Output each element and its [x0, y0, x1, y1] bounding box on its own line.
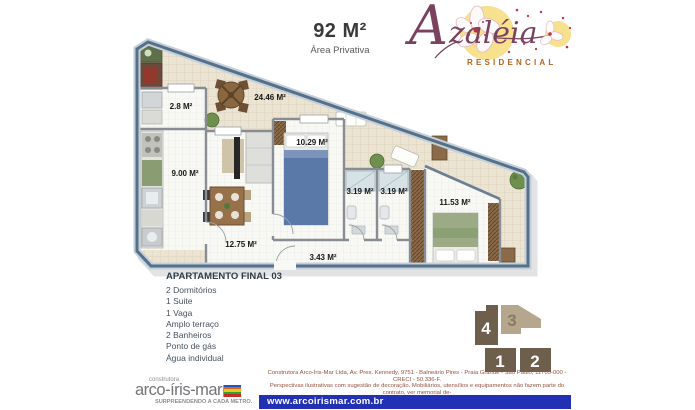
stove	[142, 133, 162, 157]
planter-pot	[145, 50, 152, 57]
tree-detail	[513, 175, 518, 180]
detail-item: 1 Suite	[166, 296, 282, 307]
sink-basin	[146, 192, 158, 204]
unit-number-2: 2	[530, 352, 539, 371]
entrance-gap	[274, 261, 296, 270]
room-label-banheiro-1: 3.19 M²	[346, 187, 373, 196]
room-label-suite: 11.53 M²	[439, 198, 470, 207]
room-label-cozinha: 9.00 M²	[171, 169, 198, 178]
builder-name: arco-íris-mar	[135, 383, 260, 398]
kitchen-garden	[142, 160, 162, 186]
brand-subtitle: RESIDENCIAL	[467, 58, 556, 67]
rainbow-flag-icon	[223, 385, 241, 397]
terrace-dining-set	[215, 79, 249, 113]
brand-name: zaléia	[449, 16, 538, 51]
sofa	[246, 131, 273, 183]
room-label-hall: 3.43 M²	[309, 253, 336, 262]
unit-number-3: 3	[507, 311, 516, 330]
units-diagram: 4 3 1 2	[455, 295, 565, 375]
terrace-bench-wood	[500, 248, 515, 262]
water-heater	[142, 110, 162, 124]
website-bar: www.arcoirismar.com.br	[259, 395, 571, 409]
laundry-tub	[142, 92, 162, 108]
builder-logo: construtora arco-íris-mar SURPREENDENDO …	[135, 377, 260, 405]
flyer-page: 92 M² Área Privativa	[0, 0, 695, 410]
dining-set	[203, 187, 251, 225]
tv-panel	[234, 137, 240, 179]
legal-line: Construtora Arco-Íris-Mar Ltda, Av. Pres…	[262, 370, 572, 383]
room-label-terraco: 24.46 M²	[254, 93, 286, 102]
unit-number-1: 1	[495, 352, 504, 371]
detail-item: 1 Vaga	[166, 308, 282, 319]
detail-item: Água individual	[166, 353, 282, 364]
plant-icon	[370, 154, 384, 168]
floor-plan: 24.46 M² 2.8 M² 9.00 M² 10.29 M² 3.19 M²…	[0, 0, 695, 410]
apartment-details: APARTAMENTO FINAL 03 2 Dormitórios 1 Sui…	[166, 271, 282, 364]
unit-number-4: 4	[481, 319, 491, 338]
apartment-title: APARTAMENTO FINAL 03	[166, 271, 282, 282]
suite-wardrobe	[488, 203, 499, 261]
room-label-sala: 12.75 M²	[225, 240, 257, 249]
room-label-banheiro-2: 3.19 M²	[380, 187, 407, 196]
detail-item: Amplo terraço	[166, 319, 282, 330]
detail-item: 2 Dormitórios	[166, 285, 282, 296]
room-label-dormitorio: 10.29 M²	[296, 138, 328, 147]
builder-name-text: arco-íris-mar	[135, 381, 222, 399]
builder-slogan: SURPREENDENDO A CADA METRO.	[155, 399, 260, 405]
double-bed-green	[433, 213, 478, 264]
room-label-servico: 2.8 M²	[170, 102, 193, 111]
brand-initial: A	[409, 0, 448, 57]
detail-item: 2 Banheiros	[166, 330, 282, 341]
hall-wardrobe	[411, 170, 424, 263]
grill-top	[144, 68, 158, 84]
detail-item: Ponto de gás	[166, 341, 282, 352]
rug	[222, 139, 244, 173]
kitchen-cabinet	[142, 210, 162, 226]
